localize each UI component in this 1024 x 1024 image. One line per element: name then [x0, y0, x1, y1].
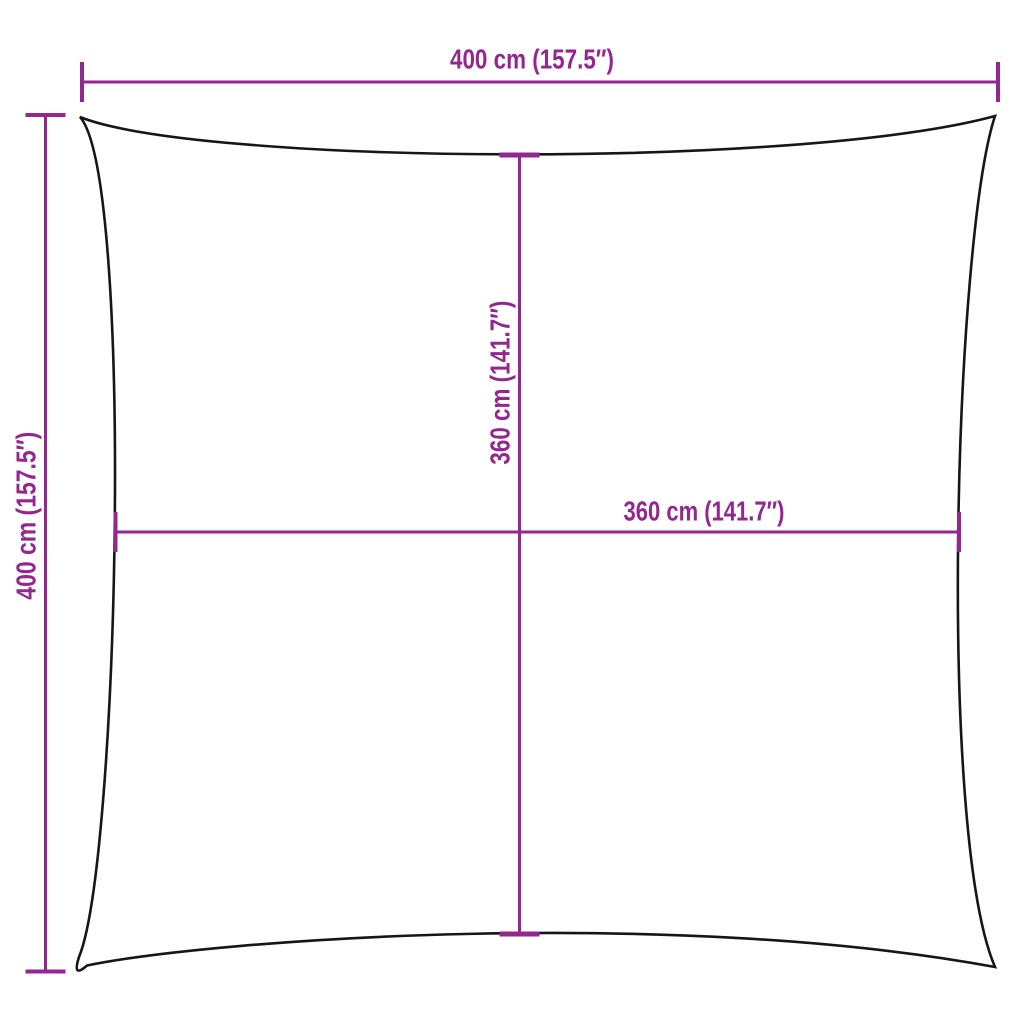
svg-text:400 cm (157.5″): 400 cm (157.5″): [11, 432, 42, 600]
svg-text:360 cm (141.7″): 360 cm (141.7″): [624, 496, 785, 527]
svg-text:360 cm (141.7″): 360 cm (141.7″): [485, 301, 516, 465]
svg-text:400 cm (157.5″): 400 cm (157.5″): [450, 44, 614, 75]
